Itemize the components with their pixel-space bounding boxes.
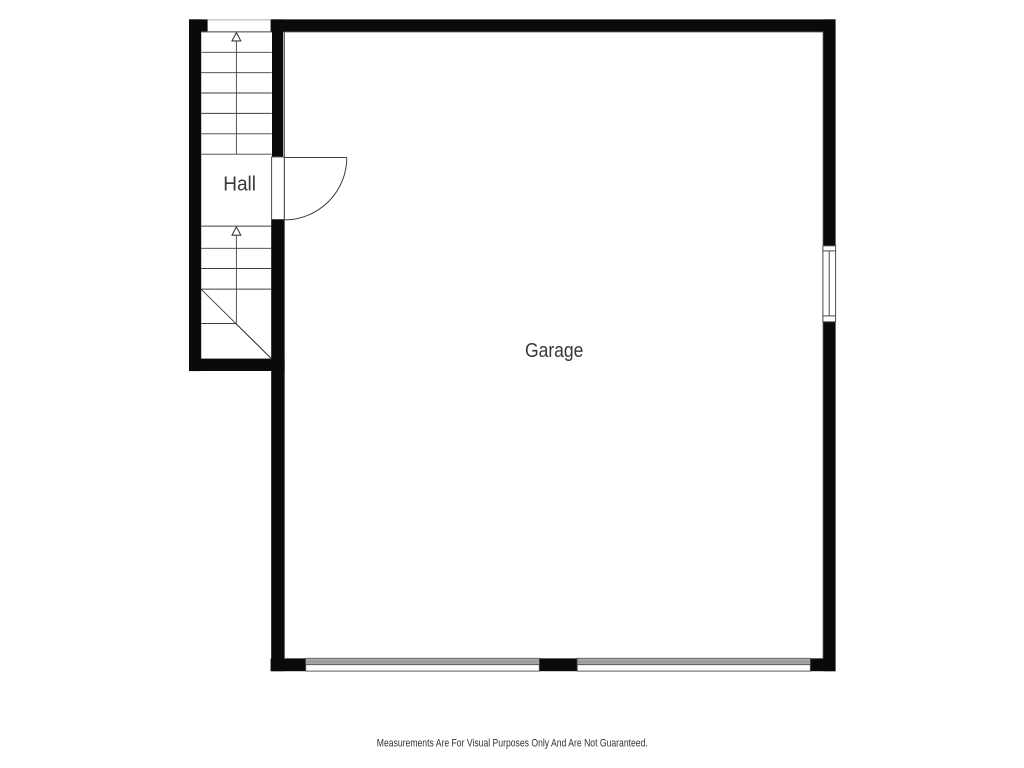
svg-text:Measurements Are For Visual Pu: Measurements Are For Visual Purposes Onl… xyxy=(377,737,648,749)
svg-text:Garage: Garage xyxy=(525,340,584,362)
svg-text:Hall: Hall xyxy=(223,174,256,196)
